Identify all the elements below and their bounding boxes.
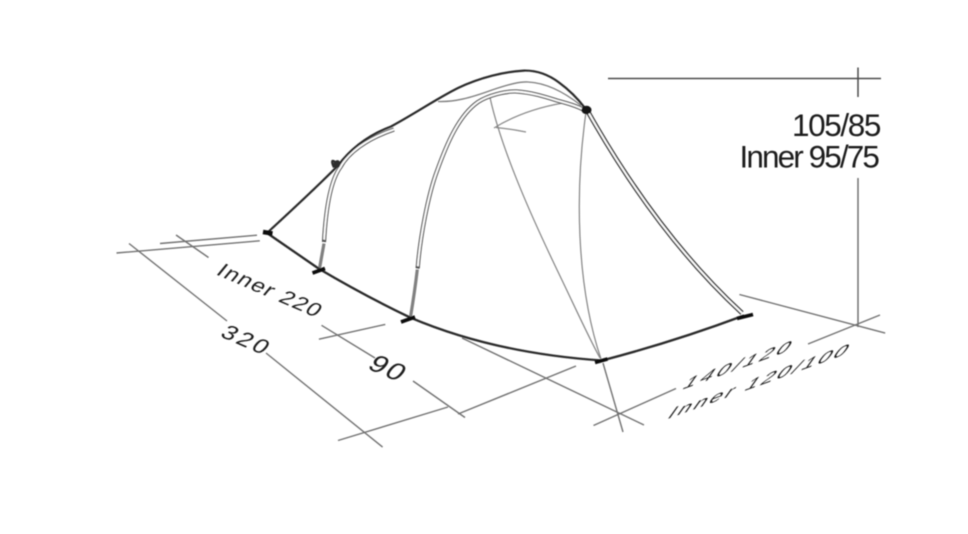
svg-text:Inner 95/75: Inner 95/75 [740,139,880,175]
svg-text:320: 320 [216,321,278,360]
svg-text:Inner 220: Inner 220 [212,259,329,321]
